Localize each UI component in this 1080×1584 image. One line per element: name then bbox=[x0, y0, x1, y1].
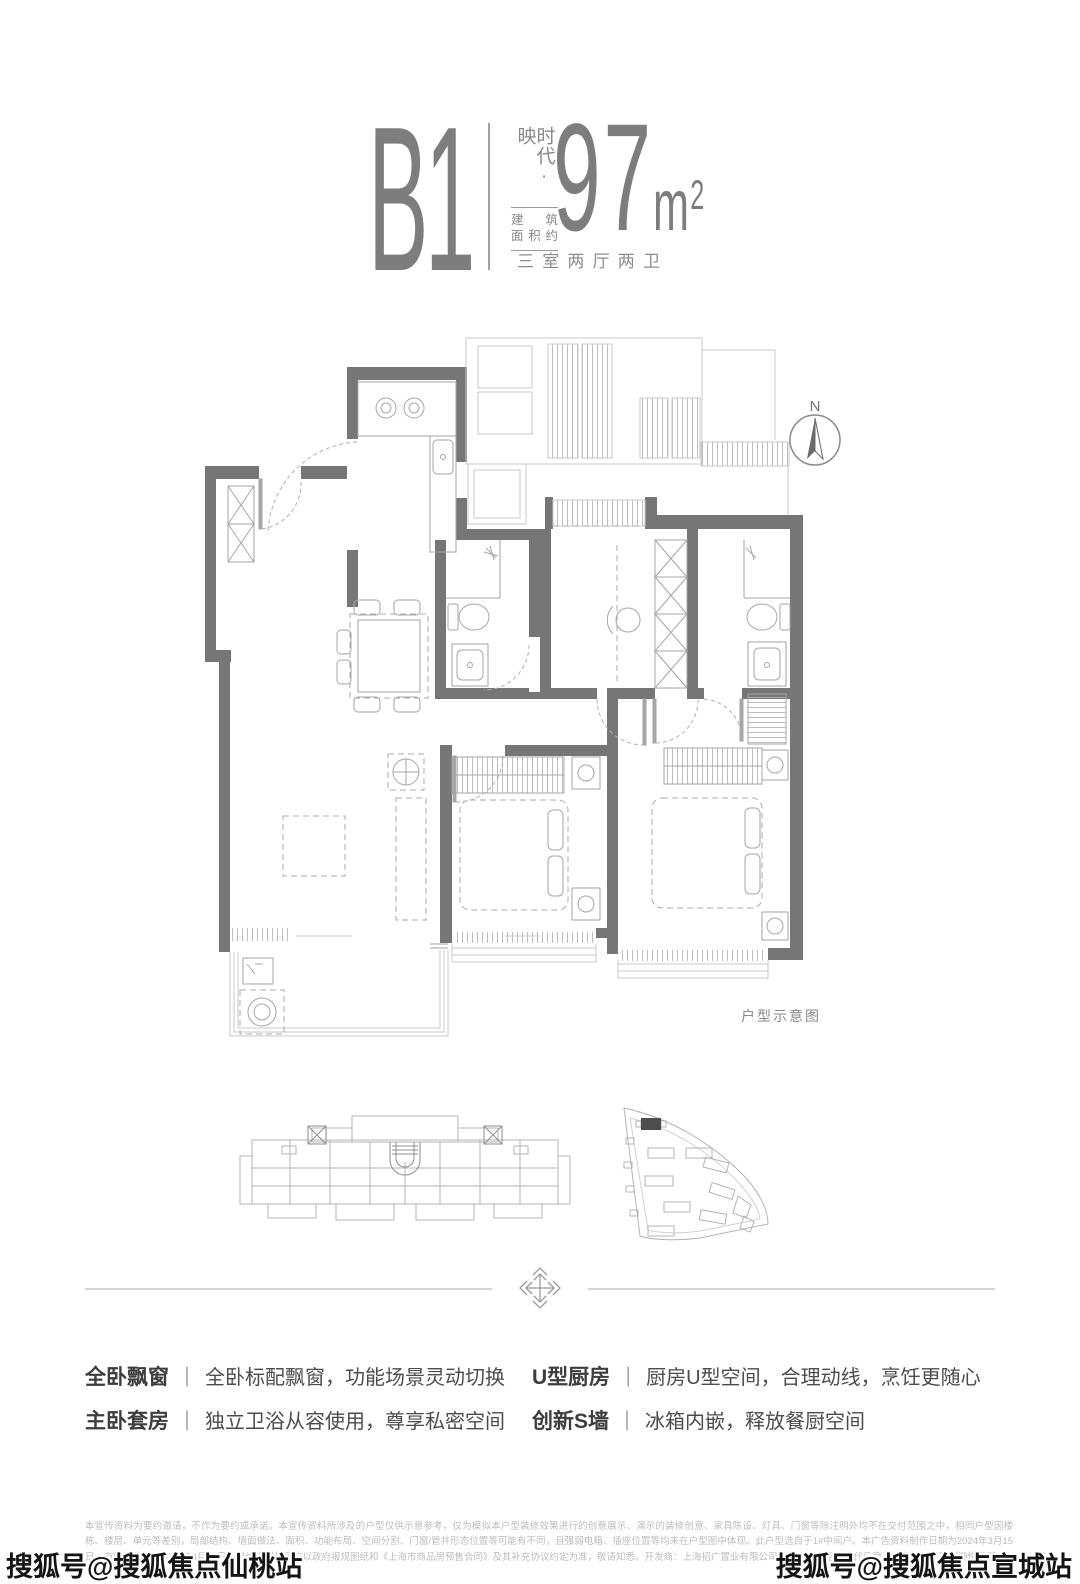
site-key-plan bbox=[616, 1096, 792, 1244]
area-label-line1: 建筑 bbox=[511, 212, 558, 228]
brand-name: 时代·映 bbox=[516, 126, 554, 202]
feature-separator: ｜ bbox=[617, 1411, 637, 1433]
room-layout-spec: 三室两厅两卫 bbox=[517, 247, 668, 272]
feature-label: 主卧套房 bbox=[85, 1410, 169, 1433]
plan-caption: 户型示意图 bbox=[741, 1006, 821, 1026]
emblem-icon bbox=[518, 1266, 562, 1310]
highlighted-building bbox=[641, 1118, 661, 1130]
watermark-right: 搜狐号@搜狐焦点宣城站 bbox=[776, 1545, 1072, 1584]
watermark-left: 搜狐号@搜狐焦点仙桃站 bbox=[6, 1545, 302, 1584]
feature-desc: 全卧标配飘窗，功能场景灵动切换 bbox=[205, 1367, 505, 1389]
feature-u-kitchen: U型厨房｜厨房U型空间，合理动线，烹饪更随心 bbox=[532, 1364, 1000, 1391]
floorplan-poster: B1 时代·映 建筑 面积约 97 m2 三室两厅两卫 bbox=[0, 0, 1080, 1584]
area-unit: m2 bbox=[653, 170, 704, 242]
floor-plan-drawing bbox=[195, 330, 840, 1050]
north-arrow-icon bbox=[787, 409, 843, 467]
building-key-plan bbox=[230, 1096, 574, 1236]
area-value: 97 bbox=[553, 101, 654, 254]
feature-master-suite: 主卧套房｜独立卫浴从容使用，尊享私密空间 bbox=[85, 1408, 532, 1435]
area-unit-sup: 2 bbox=[690, 171, 704, 218]
compass: N bbox=[786, 399, 844, 472]
feature-bay-windows: 全卧飘窗｜全卧标配飘窗，功能场景灵动切换 bbox=[85, 1364, 532, 1391]
area-unit-base: m bbox=[653, 166, 689, 246]
feature-label: 创新S墙 bbox=[532, 1410, 609, 1433]
divider-line-left bbox=[85, 1288, 492, 1290]
feature-separator: ｜ bbox=[177, 1367, 197, 1389]
unit-name: B1 bbox=[368, 96, 472, 302]
feature-label: 全卧飘窗 bbox=[85, 1366, 169, 1389]
header-divider bbox=[488, 123, 490, 270]
divider-line-right bbox=[588, 1288, 995, 1290]
light-lines bbox=[228, 338, 789, 1036]
feature-separator: ｜ bbox=[618, 1367, 638, 1389]
area-label-line2: 面积约 bbox=[511, 228, 558, 244]
feature-s-wall: 创新S墙｜冰箱内嵌，释放餐厨空间 bbox=[532, 1408, 1000, 1435]
feature-desc: 独立卫浴从容使用，尊享私密空间 bbox=[205, 1411, 505, 1433]
feature-desc: 厨房U型空间，合理动线，烹饪更随心 bbox=[646, 1367, 980, 1389]
feature-separator: ｜ bbox=[177, 1411, 197, 1433]
feature-list: 全卧飘窗｜全卧标配飘窗，功能场景灵动切换 U型厨房｜厨房U型空间，合理动线，烹饪… bbox=[85, 1364, 1000, 1436]
feature-label: U型厨房 bbox=[532, 1366, 610, 1389]
brand-block: 时代·映 建筑 面积约 bbox=[511, 126, 558, 255]
brand-rule-top bbox=[511, 207, 558, 208]
feature-desc: 冰箱内嵌，释放餐厨空间 bbox=[645, 1411, 865, 1433]
